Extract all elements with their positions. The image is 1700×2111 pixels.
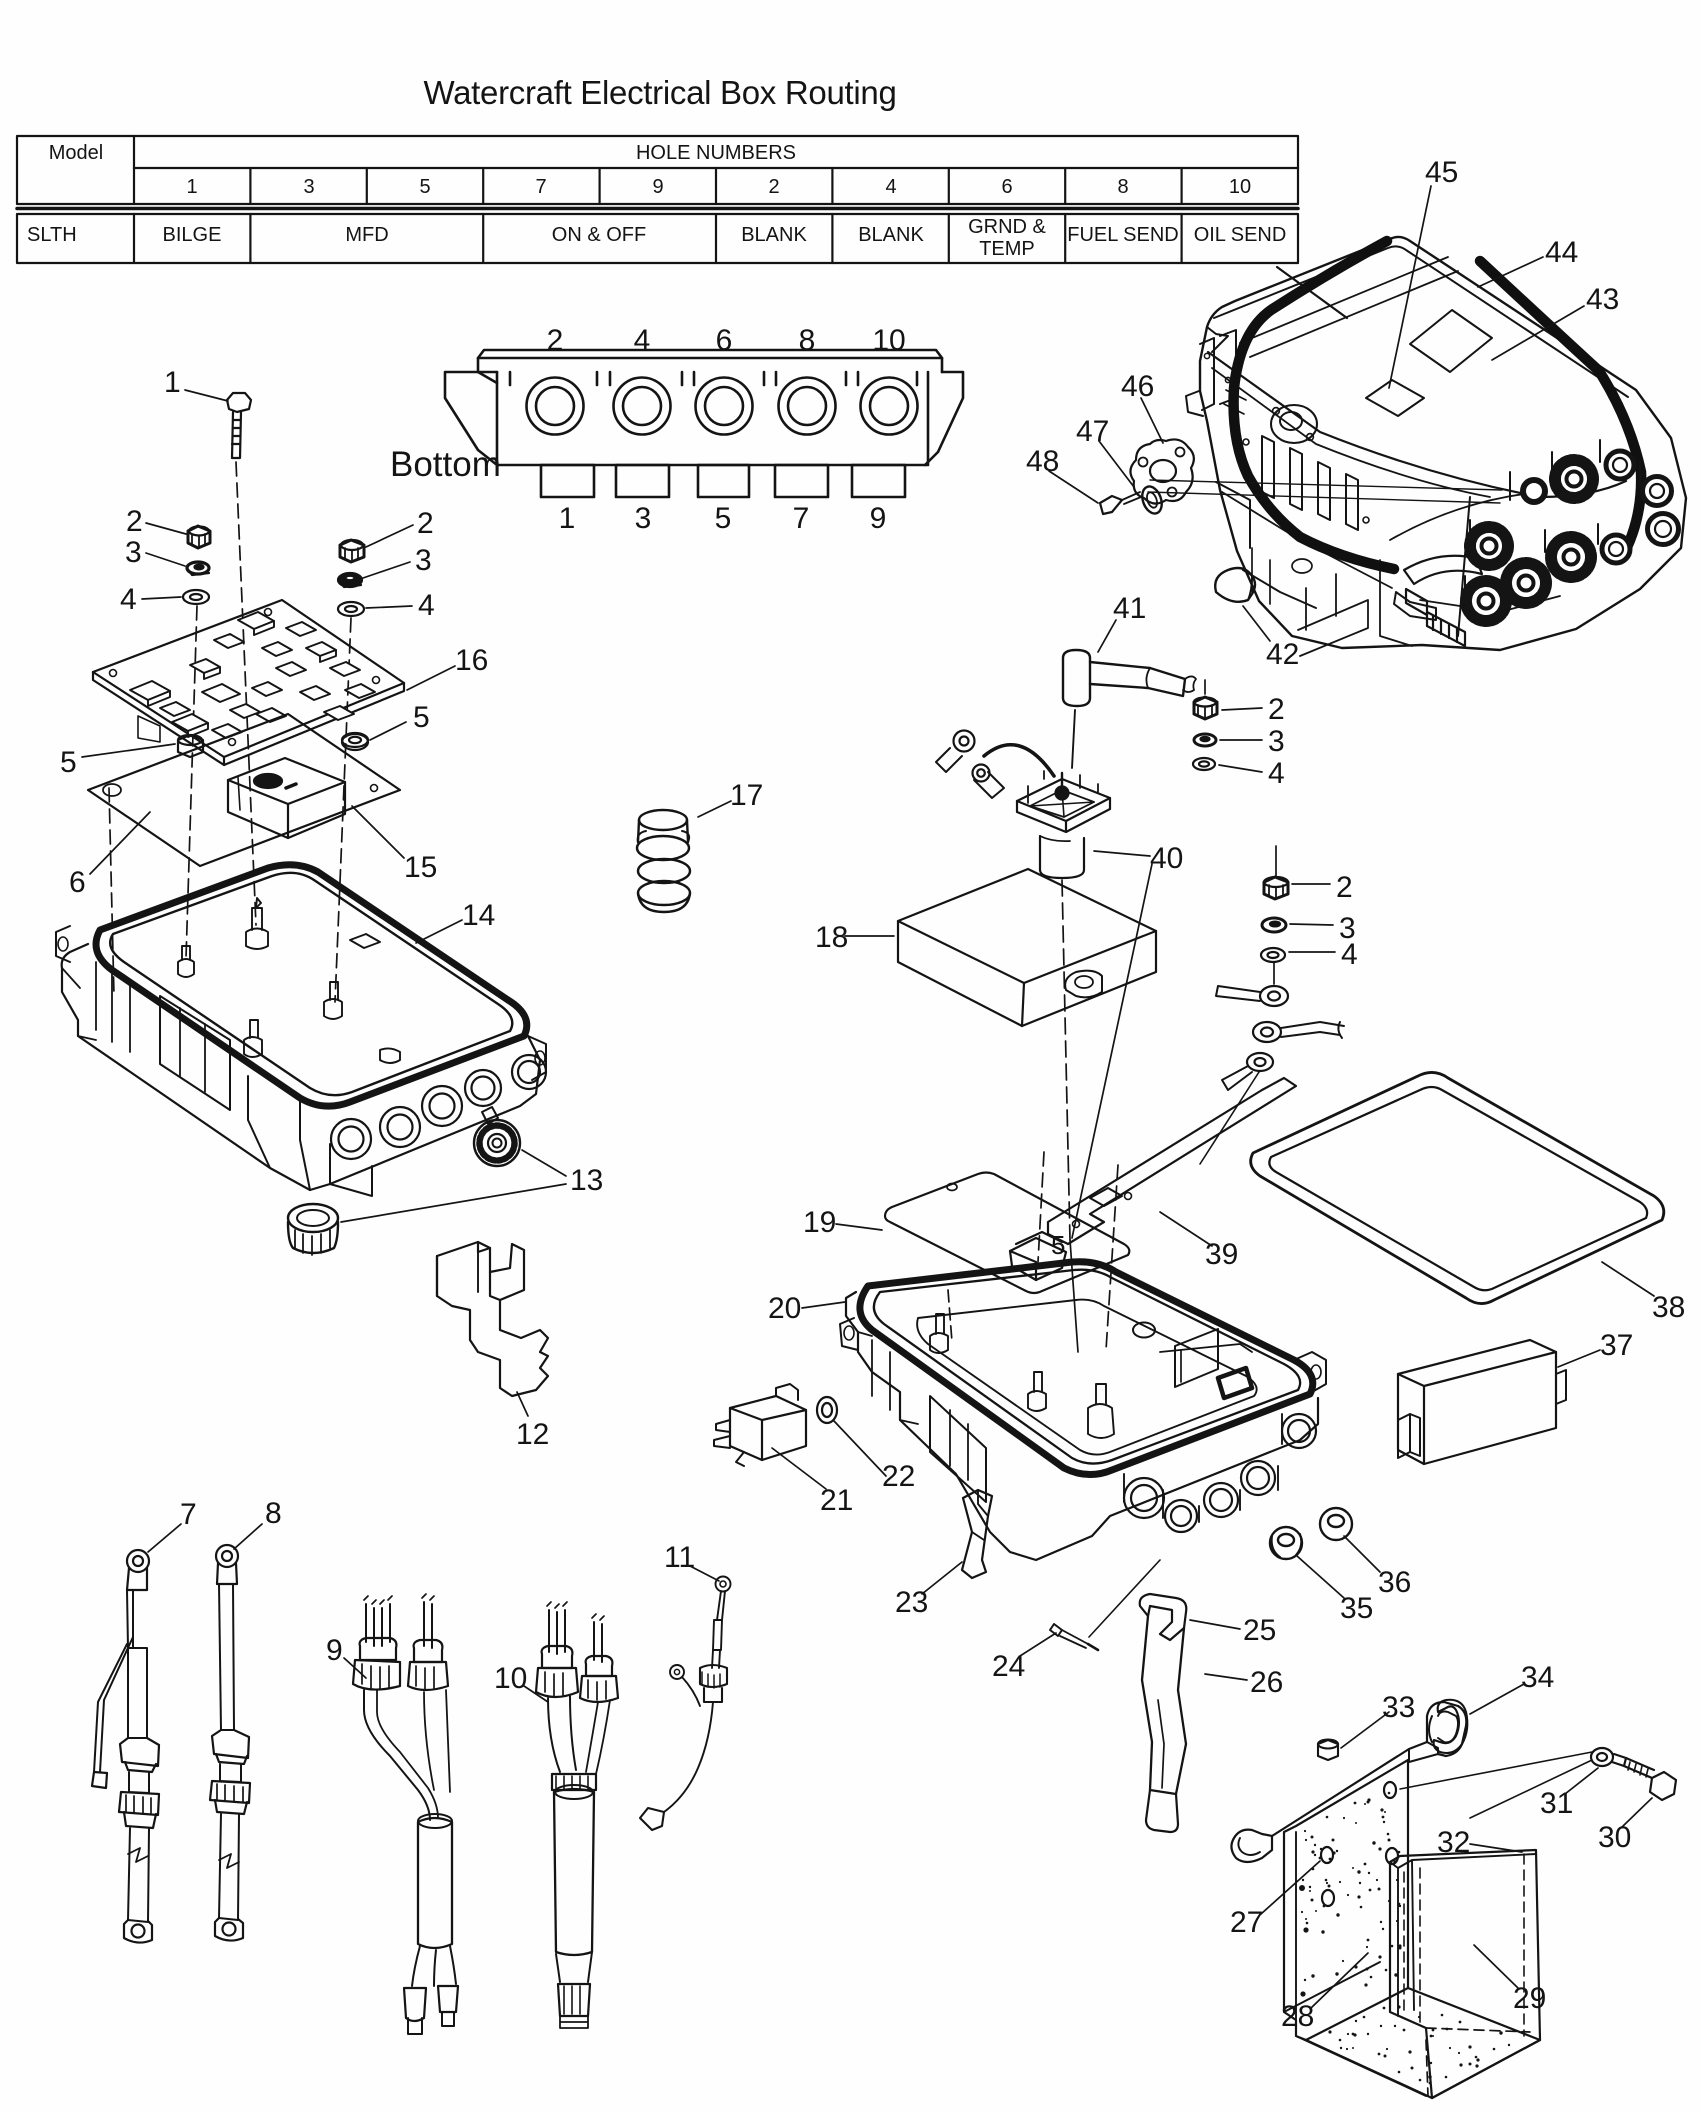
svg-text:40: 40 (1150, 842, 1183, 875)
svg-text:1: 1 (164, 366, 181, 399)
svg-text:41: 41 (1113, 592, 1146, 625)
svg-text:OIL SEND: OIL SEND (1194, 224, 1287, 246)
svg-text:12: 12 (516, 1418, 549, 1451)
svg-text:1: 1 (186, 176, 197, 198)
svg-text:43: 43 (1586, 283, 1619, 316)
svg-text:33: 33 (1382, 1691, 1415, 1724)
svg-text:47: 47 (1076, 415, 1109, 448)
svg-text:22: 22 (882, 1460, 915, 1493)
svg-text:4: 4 (1268, 757, 1285, 790)
svg-text:4: 4 (634, 324, 651, 357)
svg-text:30: 30 (1598, 1821, 1631, 1854)
svg-text:4: 4 (120, 583, 137, 616)
svg-text:TEMP: TEMP (979, 238, 1035, 260)
svg-text:16: 16 (455, 644, 488, 677)
svg-text:8: 8 (265, 1497, 282, 1530)
svg-text:7: 7 (180, 1498, 197, 1531)
svg-text:36: 36 (1378, 1566, 1411, 1599)
svg-text:8: 8 (1117, 176, 1128, 198)
svg-text:SLTH: SLTH (27, 224, 77, 246)
svg-text:3: 3 (415, 544, 432, 577)
svg-text:29: 29 (1513, 1982, 1546, 2015)
svg-text:13: 13 (570, 1164, 603, 1197)
svg-text:4: 4 (885, 176, 896, 198)
svg-text:42: 42 (1266, 638, 1299, 671)
svg-text:27: 27 (1230, 1906, 1263, 1939)
svg-text:21: 21 (820, 1484, 853, 1517)
svg-text:38: 38 (1652, 1291, 1685, 1324)
svg-text:45: 45 (1425, 156, 1458, 189)
svg-text:Watercraft Electrical Box Rout: Watercraft Electrical Box Routing (423, 74, 896, 111)
svg-text:17: 17 (730, 779, 763, 812)
svg-text:44: 44 (1545, 236, 1578, 269)
svg-text:1: 1 (559, 502, 576, 535)
svg-text:2: 2 (547, 324, 564, 357)
svg-text:24: 24 (992, 1650, 1025, 1683)
svg-text:BLANK: BLANK (858, 224, 924, 246)
svg-text:2: 2 (417, 507, 434, 540)
svg-text:7: 7 (793, 502, 810, 535)
svg-text:BILGE: BILGE (163, 224, 222, 246)
svg-text:31: 31 (1540, 1787, 1573, 1820)
svg-text:46: 46 (1121, 370, 1154, 403)
svg-text:11: 11 (664, 1541, 695, 1574)
svg-text:6: 6 (716, 324, 733, 357)
svg-text:6: 6 (1001, 176, 1012, 198)
svg-text:5: 5 (715, 502, 732, 535)
svg-text:10: 10 (1229, 176, 1251, 198)
svg-text:26: 26 (1250, 1666, 1283, 1699)
svg-text:18: 18 (815, 921, 848, 954)
svg-text:FUEL SEND: FUEL SEND (1067, 224, 1179, 246)
svg-text:4: 4 (1341, 938, 1358, 971)
svg-text:19: 19 (803, 1206, 836, 1239)
svg-text:3: 3 (1268, 725, 1285, 758)
svg-text:35: 35 (1340, 1592, 1373, 1625)
svg-text:9: 9 (326, 1634, 343, 1667)
svg-text:2: 2 (1268, 693, 1285, 726)
svg-text:3: 3 (125, 536, 142, 569)
svg-text:10: 10 (872, 324, 905, 357)
svg-text:34: 34 (1521, 1661, 1554, 1694)
svg-text:6: 6 (69, 866, 86, 899)
svg-text:5: 5 (1051, 1230, 1065, 1260)
svg-text:9: 9 (652, 176, 663, 198)
svg-text:ON & OFF: ON & OFF (552, 224, 646, 246)
svg-text:4: 4 (418, 589, 435, 622)
svg-text:MFD: MFD (345, 224, 388, 246)
svg-text:5: 5 (413, 701, 430, 734)
svg-text:20: 20 (768, 1292, 801, 1325)
svg-text:28: 28 (1281, 2000, 1314, 2033)
svg-text:2: 2 (126, 505, 143, 538)
svg-text:8: 8 (799, 324, 816, 357)
svg-text:HOLE NUMBERS: HOLE NUMBERS (636, 142, 796, 164)
svg-text:10: 10 (494, 1662, 527, 1695)
svg-text:3: 3 (303, 176, 314, 198)
svg-text:Model: Model (49, 142, 103, 164)
svg-text:15: 15 (404, 851, 437, 884)
svg-text:GRND &: GRND & (968, 216, 1046, 238)
svg-text:3: 3 (635, 502, 652, 535)
svg-text:5: 5 (419, 176, 430, 198)
svg-text:25: 25 (1243, 1614, 1276, 1647)
svg-text:2: 2 (1336, 871, 1353, 904)
svg-text:9: 9 (870, 502, 887, 535)
svg-text:Bottom: Bottom (390, 445, 501, 484)
svg-text:5: 5 (60, 746, 77, 779)
svg-text:48: 48 (1026, 445, 1059, 478)
svg-text:BLANK: BLANK (741, 224, 807, 246)
svg-text:37: 37 (1600, 1329, 1633, 1362)
svg-text:7: 7 (535, 176, 546, 198)
svg-text:2: 2 (768, 176, 779, 198)
svg-text:39: 39 (1205, 1238, 1238, 1271)
svg-text:14: 14 (462, 899, 495, 932)
svg-text:32: 32 (1437, 1826, 1470, 1859)
svg-text:23: 23 (895, 1586, 928, 1619)
